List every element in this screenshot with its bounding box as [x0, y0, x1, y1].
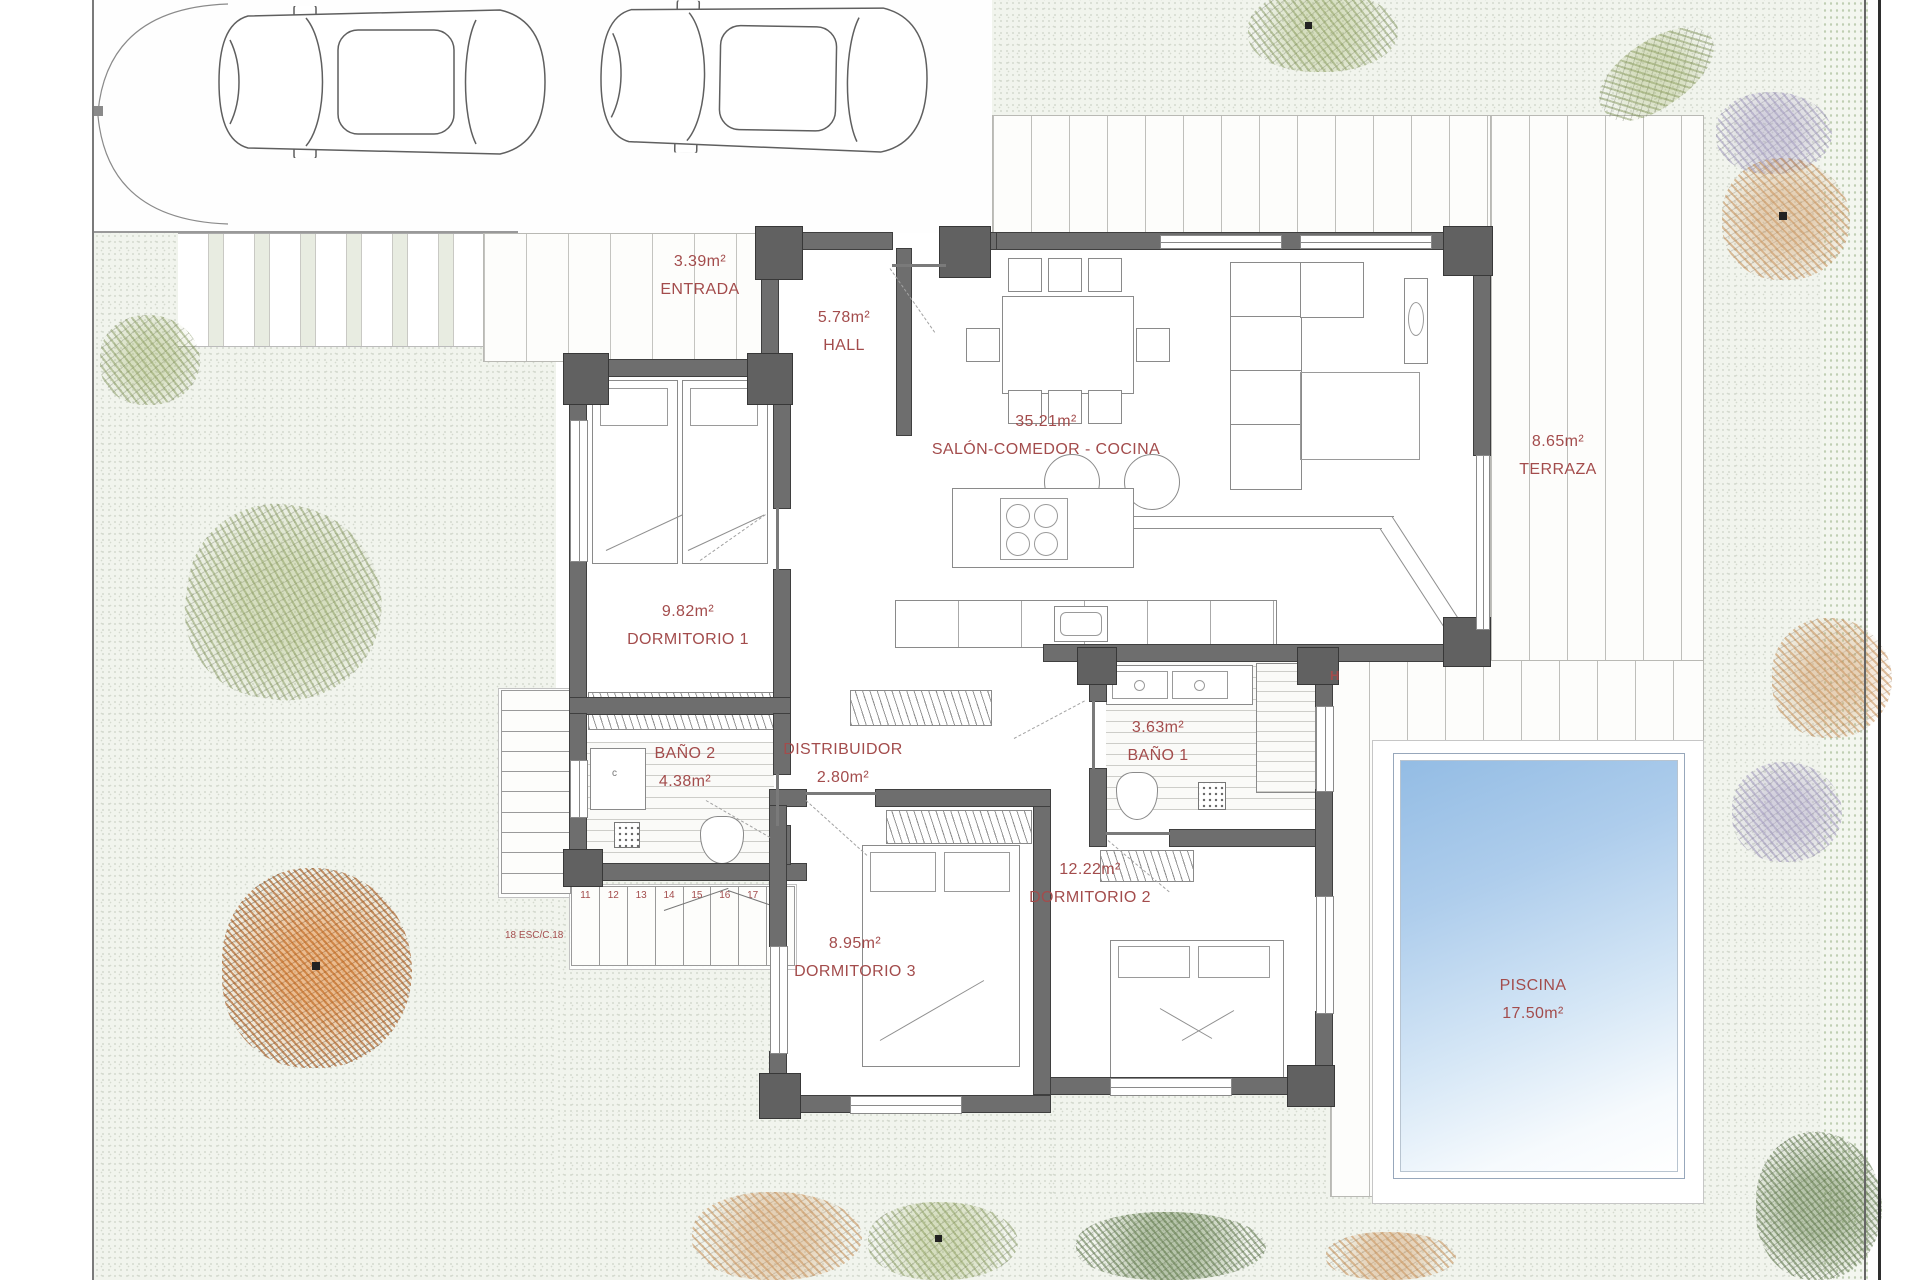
- window: [1300, 235, 1432, 249]
- stair-tread: 9: [502, 853, 570, 873]
- wall-pillar: [1078, 648, 1116, 684]
- window: [850, 1096, 962, 1114]
- room-area: 9.82m²: [598, 598, 778, 626]
- garden-patch-below-dorm2: [1046, 1094, 1330, 1195]
- stair-tread: 14: [656, 887, 684, 965]
- deck-terraza: [1490, 115, 1704, 662]
- pool: [1394, 754, 1684, 1178]
- room-label-distribuidor: DISTRIBUIDOR 2.80m²: [758, 736, 928, 792]
- stairs-label: 18 ESC/C.18: [505, 930, 563, 941]
- tree: [1076, 1212, 1266, 1280]
- dining-chair: [1136, 328, 1170, 362]
- room-name: BAÑO 2: [610, 740, 760, 768]
- glass-door: [1316, 896, 1334, 1014]
- stair-tread: 10: [502, 874, 570, 893]
- stair-tread: 8: [502, 833, 570, 853]
- room-label-dormitorio-2: 12.22m² DORMITORIO 2: [1000, 856, 1180, 912]
- stair-step-number: 13: [636, 890, 647, 901]
- wall-segment: [876, 790, 1050, 806]
- counter-line: [1134, 516, 1394, 517]
- room-area: 3.63m²: [1098, 714, 1218, 742]
- pillow: [870, 852, 936, 892]
- driveway-edge-line: [94, 231, 518, 233]
- tree-trunk-dot: [1305, 22, 1312, 29]
- wall-pillar: [748, 354, 792, 404]
- boundary-line-right-inner: [1864, 0, 1866, 1280]
- room-name: PISCINA: [1394, 972, 1672, 1000]
- room-name: TERRAZA: [1488, 456, 1628, 484]
- tv-decor: [1408, 302, 1424, 336]
- floor-plan-canvas: c: [0, 0, 1920, 1280]
- kitchen-sink-basin: [1060, 612, 1102, 636]
- room-area: 35.21m²: [900, 408, 1192, 436]
- room-area: 12.22m²: [1000, 856, 1180, 884]
- stair-tread: 2: [502, 711, 570, 731]
- gate-arcs: [94, 0, 230, 228]
- sofa-cushion: [1230, 370, 1302, 426]
- wall-pillar: [940, 227, 990, 277]
- stair-tread: 3: [502, 732, 570, 752]
- burner: [1034, 504, 1058, 528]
- wall-marker-h: H: [1330, 668, 1339, 683]
- stair-tread: 5: [502, 772, 570, 792]
- boundary-line-right-outer: [1878, 0, 1881, 1280]
- tree: [1732, 762, 1842, 862]
- stair-step-number: 14: [664, 890, 675, 901]
- door-leaf: [806, 792, 876, 795]
- room-name: DORMITORIO 3: [770, 958, 940, 986]
- room-area: 5.78m²: [786, 304, 902, 332]
- burner: [1006, 504, 1030, 528]
- door-leaf: [1106, 832, 1170, 835]
- window: [1160, 235, 1282, 249]
- wall-pillar: [760, 1074, 800, 1118]
- tree: [692, 1192, 862, 1280]
- wall-pillar: [1444, 227, 1492, 275]
- tree: [1326, 1232, 1456, 1280]
- window: [570, 760, 588, 818]
- faucet: [1134, 680, 1145, 691]
- door-leaf: [776, 508, 779, 570]
- tree-trunk-dot: [1779, 212, 1787, 220]
- room-area: 8.95m²: [770, 930, 940, 958]
- wall-segment: [1170, 830, 1332, 846]
- pillow: [1118, 946, 1190, 978]
- door-leaf: [892, 264, 946, 267]
- wall-pillar: [1288, 1066, 1334, 1106]
- room-label-hall: 5.78m² HALL: [786, 304, 902, 360]
- coffee-table: [1300, 372, 1420, 460]
- stair-tread: 1: [502, 691, 570, 711]
- stair-tread: 7: [502, 813, 570, 833]
- room-name: BAÑO 1: [1098, 742, 1218, 770]
- stair-tread: 12: [600, 887, 628, 965]
- dining-chair: [1008, 258, 1042, 292]
- door-leaf: [1092, 701, 1095, 769]
- room-area: 3.39m²: [600, 248, 800, 276]
- room-name: DORMITORIO 1: [598, 626, 778, 654]
- garden-area-top: [992, 0, 1868, 115]
- wall-pillar: [564, 850, 602, 886]
- dining-chair: [1048, 258, 1082, 292]
- wall-segment: [1090, 769, 1106, 846]
- pillow: [1198, 946, 1270, 978]
- wall-segment: [770, 806, 786, 946]
- stair-step-number: 12: [608, 890, 619, 901]
- walkway-zebra: [178, 233, 483, 347]
- pillow: [600, 388, 668, 426]
- shower-drain: [1198, 782, 1226, 810]
- room-label-piscina: PISCINA 17.50m²: [1394, 972, 1672, 1028]
- tree: [100, 315, 200, 405]
- car-icon: [595, 0, 934, 157]
- wall-segment: [570, 698, 790, 714]
- stair-step-number: 16: [719, 890, 730, 901]
- wall-segment: [1474, 249, 1490, 455]
- room-label-entrada: 3.39m² ENTRADA: [600, 248, 800, 304]
- dining-table: [1002, 296, 1134, 394]
- stair-tread: 16: [711, 887, 739, 965]
- window: [1316, 706, 1334, 792]
- room-label-dormitorio-1: 9.82m² DORMITORIO 1: [598, 598, 778, 654]
- stair-tread: 11: [572, 887, 600, 965]
- sofa-corner: [1230, 424, 1302, 490]
- sofa-cushion: [1230, 316, 1302, 372]
- stair-tread: 6: [502, 792, 570, 812]
- room-label-bano-1: 3.63m² BAÑO 1: [1098, 714, 1218, 770]
- room-label-terraza: 8.65m² TERRAZA: [1488, 428, 1628, 484]
- car-icon: [214, 6, 550, 158]
- sofa-cushion: [1230, 262, 1302, 318]
- stairs-steps-down: 12345678910: [501, 690, 571, 894]
- counter-line: [1134, 528, 1382, 529]
- dining-chair: [1088, 258, 1122, 292]
- wardrobe: [886, 810, 1032, 844]
- garden-patch-below-dorm3: [556, 1112, 1052, 1195]
- sofa-cushion: [1300, 262, 1364, 318]
- faucet: [1194, 680, 1205, 691]
- room-area: 2.80m²: [758, 764, 928, 792]
- stair-tread: 4: [502, 752, 570, 772]
- room-area: 8.65m²: [1488, 428, 1628, 456]
- dining-chair: [966, 328, 1000, 362]
- room-label-dormitorio-3: 8.95m² DORMITORIO 3: [770, 930, 940, 986]
- room-name: DORMITORIO 2: [1000, 884, 1180, 912]
- wall-segment: [1316, 790, 1332, 896]
- wardrobe: [850, 690, 992, 726]
- boundary-line-left: [92, 0, 94, 1280]
- room-label-salon: 35.21m² SALÓN-COMEDOR - COCINA: [900, 408, 1192, 464]
- tree: [1772, 618, 1892, 738]
- room-area: 17.50m²: [1394, 1000, 1672, 1028]
- tree-trunk-dot: [312, 962, 320, 970]
- room-name: DISTRIBUIDOR: [758, 736, 928, 764]
- wall-segment: [1034, 806, 1050, 1094]
- tree: [868, 1202, 1018, 1280]
- room-name: ENTRADA: [600, 276, 800, 304]
- wall-pillar: [564, 354, 608, 404]
- window: [570, 420, 588, 562]
- room-name: HALL: [786, 332, 902, 360]
- room-name: SALÓN-COMEDOR - COCINA: [900, 436, 1192, 464]
- shower-drain: [614, 822, 640, 848]
- stairs-steps-across: 1112131415161718: [571, 886, 795, 966]
- stair-step-number: 11: [580, 890, 590, 901]
- window: [1110, 1078, 1232, 1096]
- burner: [1006, 532, 1030, 556]
- burner: [1034, 532, 1058, 556]
- tree-trunk-dot: [935, 1235, 942, 1242]
- room-area: 4.38m²: [610, 768, 760, 796]
- stair-tread: 13: [628, 887, 656, 965]
- room-label-bano-2: BAÑO 2 4.38m²: [610, 740, 760, 796]
